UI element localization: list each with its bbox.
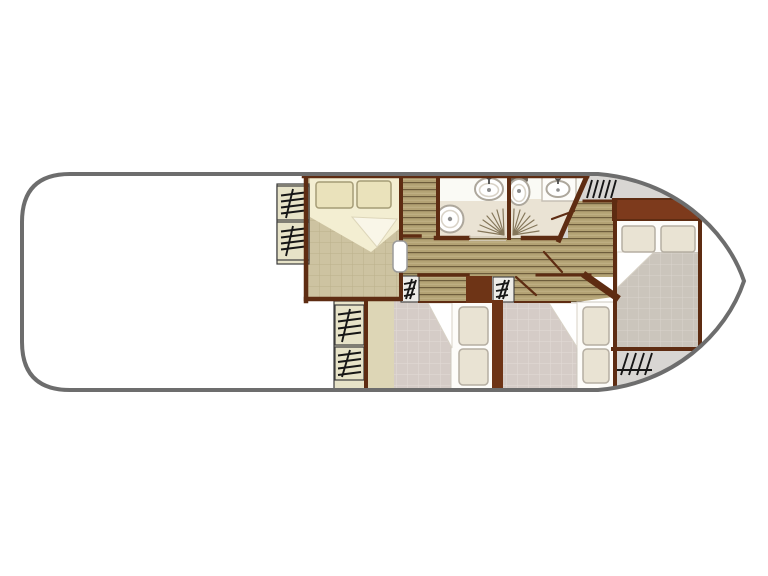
pillow-icon <box>622 226 655 252</box>
fore-cabin <box>613 199 701 349</box>
pillow-icon <box>583 349 609 383</box>
pillow-icon <box>459 349 488 385</box>
entry-steps-left <box>401 276 419 302</box>
lower-cabin-left <box>368 301 493 390</box>
alcove-left-floor <box>419 276 468 303</box>
door-leaf-icon <box>393 241 407 272</box>
pillow-icon <box>357 181 391 208</box>
headboard-wall <box>613 199 701 220</box>
aft-deck-area <box>24 176 276 388</box>
toilet-icon <box>437 206 464 233</box>
boat-floor-plan <box>0 0 768 576</box>
closet-floor <box>401 176 437 238</box>
sink-icon <box>542 176 576 201</box>
floor-plan-canvas <box>0 0 768 576</box>
wardrobe-strip <box>368 301 395 390</box>
pillow-icon <box>583 307 609 345</box>
port-cabin <box>308 176 401 301</box>
stairs-lower <box>334 301 366 390</box>
bathroom-1 <box>437 174 508 238</box>
pillow-icon <box>459 307 488 345</box>
lower-cabin-right <box>503 302 614 390</box>
wall-block <box>466 276 492 303</box>
toilet-icon <box>509 177 530 205</box>
corridor-floor <box>401 238 617 277</box>
pillow-icon <box>661 226 695 252</box>
wall-center-divider <box>492 300 503 390</box>
pillow-icon <box>316 182 353 208</box>
entry-steps-right <box>493 277 514 302</box>
